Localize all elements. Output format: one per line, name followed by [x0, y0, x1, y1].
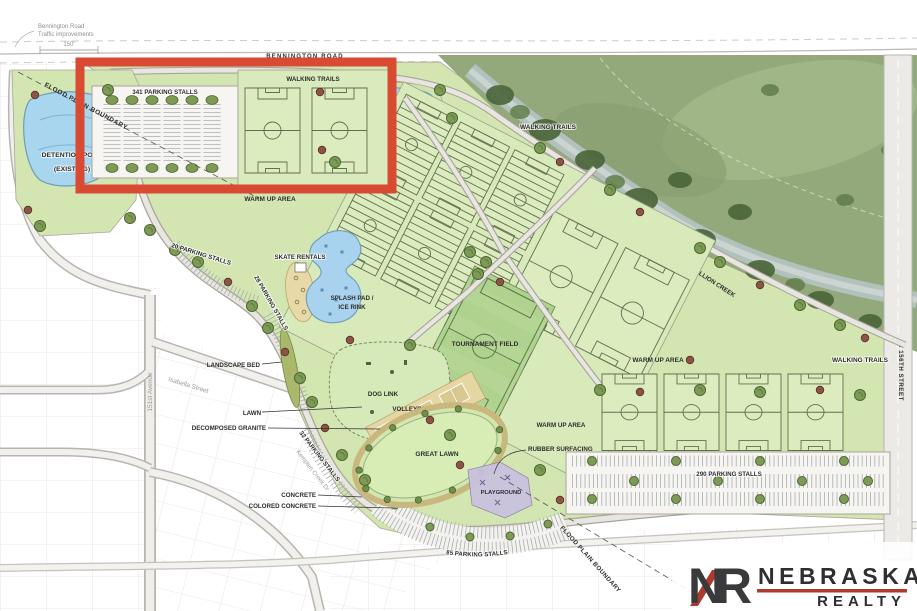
great-lawn-label: GREAT LAWN — [415, 451, 459, 458]
concrete-label: CONCRETE — [281, 492, 316, 499]
logo-subtitle: REALTY — [817, 593, 906, 610]
parking-290-label: 290 PARKING STALLS — [696, 471, 761, 478]
walking-trails-label-2: WALKING TRAILS — [520, 124, 577, 131]
decomposed-granite-label: DECOMPOSED GRANITE — [192, 425, 266, 432]
parking-341-label: 341 PARKING STALLS — [132, 89, 197, 96]
street-151st-label: 151st Avenue — [147, 372, 154, 412]
warm-up-label-1: WARM UP AREA — [244, 196, 296, 203]
splash-pad-label-line1: SPLASH PAD / — [331, 295, 374, 302]
logo-divider — [757, 589, 907, 593]
parking-lot-290: 290 PARKING STALLS — [566, 452, 890, 514]
dimension-150: 150' — [63, 42, 74, 48]
rubber-surfacing-label: RUBBER SURFACING — [528, 446, 593, 453]
traffic-note-line1: Bennington Road — [38, 24, 84, 30]
landscape-bed-label: LANDSCAPE BED — [207, 362, 261, 369]
walking-trails-label-1: WALKING TRAILS — [286, 76, 339, 83]
n-156th-street-label: N 156TH STREET — [897, 343, 904, 401]
skate-rentals-label: SKATE RENTALS — [275, 254, 326, 261]
parking-lot-341: 341 PARKING STALLS — [92, 86, 238, 178]
logo-monogram-r: R — [716, 558, 752, 611]
walking-trails-label-3: WALKING TRAILS — [832, 357, 889, 364]
playground-label: PLAYGROUND — [481, 490, 522, 496]
nebraska-realty-logo: N R NEBRASKA REALTY — [672, 542, 917, 611]
site-plan: 151st Avenue Isabella Street Kempten Cre… — [0, 0, 917, 611]
tournament-field-label: TOURNAMENT FIELD — [452, 341, 519, 348]
traffic-note-line2: Traffic improvements — [38, 32, 94, 38]
dog-link-label: DOG LINK — [368, 391, 399, 398]
warm-up-label-3: WARM UP AREA — [632, 357, 684, 364]
splash-pad-label-line2: ICE RINK — [338, 304, 366, 311]
site-plan-canvas: 151st Avenue Isabella Street Kempten Cre… — [0, 0, 917, 611]
colored-concrete-label: COLORED CONCRETE — [249, 503, 316, 510]
logo-name: NEBRASKA — [758, 563, 917, 589]
lawn-label: LAWN — [243, 410, 262, 417]
existing-pond-label-line2: (EXISTING) — [54, 166, 90, 173]
north-field-pair: WALKING TRAILS — [238, 70, 388, 188]
warm-up-label-2: WARM UP AREA — [537, 422, 586, 429]
